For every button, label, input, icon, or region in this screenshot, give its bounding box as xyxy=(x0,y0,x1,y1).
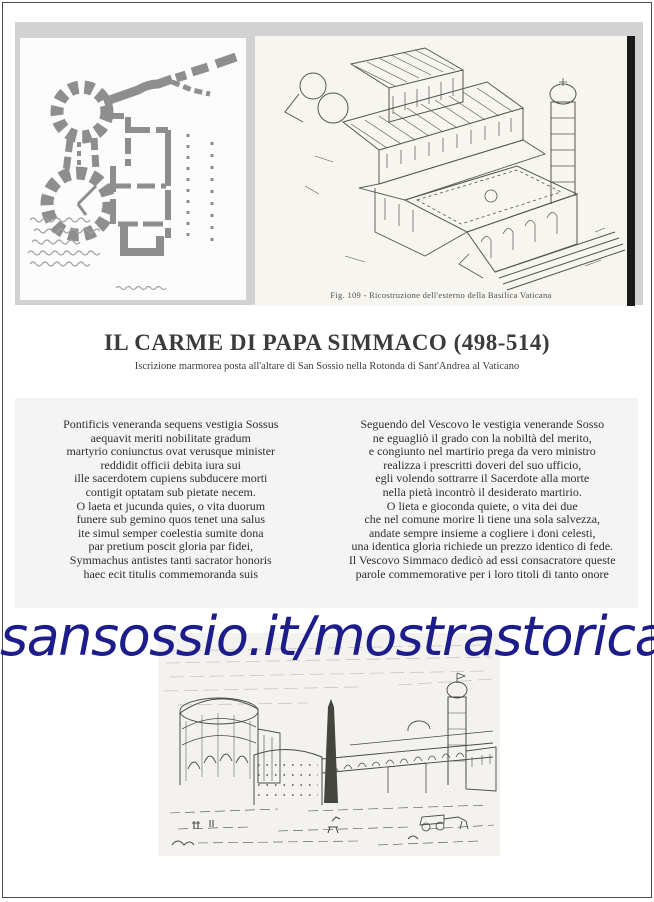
poem-italian-column: Seguendo del Vescovo le vestigia veneran… xyxy=(327,418,639,608)
figure-caption: Fig. 109 - Ricostruzione dell'esterno de… xyxy=(255,290,627,300)
poem-section: Pontificis veneranda sequens vestigia So… xyxy=(15,398,638,608)
page-subtitle: Iscrizione marmorea posta all'altare di … xyxy=(0,361,654,372)
basilica-engraving-image: Fig. 109 - Ricostruzione dell'esterno de… xyxy=(255,36,627,306)
page-title: IL CARME DI PAPA SIMMACO (498-514) xyxy=(0,330,654,356)
header-figures: Fig. 109 - Ricostruzione dell'esterno de… xyxy=(15,22,643,305)
poem-latin-column: Pontificis veneranda sequens vestigia So… xyxy=(15,418,327,608)
site-url-banner: sansossio.it/mostrastorica xyxy=(0,604,654,670)
floor-plan-sketch xyxy=(20,38,246,300)
basilica-engraving-sketch xyxy=(255,36,627,306)
floor-plan-image xyxy=(20,38,246,300)
scan-edge-band xyxy=(627,36,635,306)
